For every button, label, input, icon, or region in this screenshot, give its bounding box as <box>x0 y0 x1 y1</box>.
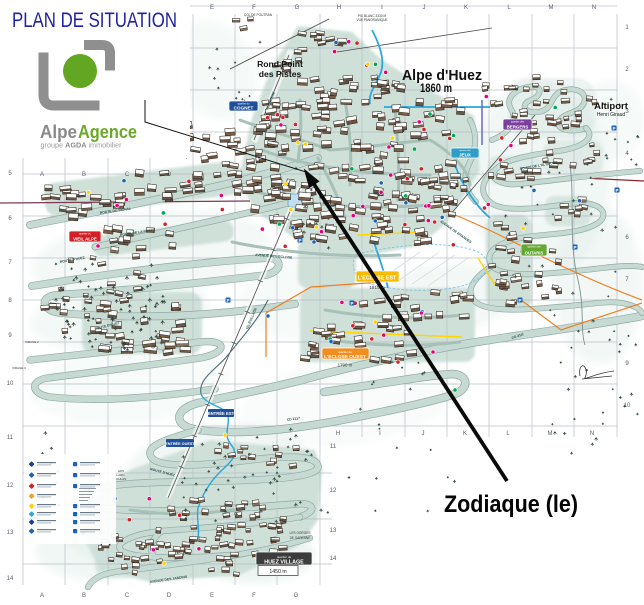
svg-text:C: C <box>125 172 130 178</box>
svg-text:Alpe d'Huez: Alpe d'Huez <box>402 67 482 84</box>
svg-text:LES GORGES: LES GORGES <box>290 531 311 535</box>
svg-text:Agence: Agence <box>78 122 137 142</box>
svg-text:B: B <box>82 172 86 178</box>
svg-text:G: G <box>295 5 300 11</box>
svg-text:P: P <box>350 301 353 306</box>
svg-text:N: N <box>592 5 596 11</box>
svg-text:14: 14 <box>330 556 337 562</box>
svg-text:G: G <box>294 593 299 599</box>
svg-text:H: H <box>337 5 341 11</box>
svg-text:H: H <box>336 431 340 437</box>
svg-text:JEUX: JEUX <box>459 153 472 158</box>
svg-text:D: D <box>167 593 172 599</box>
svg-text:Henri Giraud: Henri Giraud <box>597 112 626 118</box>
svg-text:A: A <box>40 172 44 178</box>
svg-text:C: C <box>125 593 130 599</box>
svg-text:J: J <box>422 431 425 437</box>
svg-text:quartier de: quartier de <box>277 555 292 559</box>
svg-text:P: P <box>226 298 229 303</box>
svg-text:HUEZ VILLAGE: HUEZ VILLAGE <box>264 560 304 566</box>
svg-text:1790 m: 1790 m <box>338 363 353 368</box>
svg-text:Rond Point: Rond Point <box>257 59 303 69</box>
svg-text:DE SARENNE: DE SARENNE <box>290 536 311 540</box>
svg-text:A: A <box>40 593 44 599</box>
svg-text:P: P <box>615 188 618 193</box>
svg-text:ENTRÉE OUEST: ENTRÉE OUEST <box>165 441 195 446</box>
svg-text:des Pistes: des Pistes <box>259 69 302 79</box>
svg-text:Zodiaque (le): Zodiaque (le) <box>444 491 578 518</box>
svg-text:P: P <box>612 126 615 131</box>
svg-text:quartier de: quartier de <box>338 350 352 354</box>
svg-text:M: M <box>548 431 553 437</box>
svg-text:L'ECLOSE OUEST: L'ECLOSE OUEST <box>324 354 366 360</box>
svg-text:B: B <box>82 593 86 599</box>
svg-text:10: 10 <box>7 381 14 387</box>
svg-text:1450 m: 1450 m <box>269 569 286 575</box>
svg-text:1860 m: 1860 m <box>420 83 452 95</box>
svg-text:quartier des: quartier des <box>527 245 541 248</box>
svg-text:F: F <box>252 593 256 599</box>
svg-text:VIRAGE 1: VIRAGE 1 <box>378 324 392 328</box>
svg-text:ENTRÉE EST: ENTRÉE EST <box>208 411 235 416</box>
svg-text:quartier des: quartier des <box>459 149 471 152</box>
svg-text:14: 14 <box>7 576 14 582</box>
svg-text:11: 11 <box>7 435 14 441</box>
svg-text:Altiport: Altiport <box>594 101 629 112</box>
svg-text:quartier des: quartier des <box>511 120 525 123</box>
svg-text:N: N <box>590 431 594 437</box>
svg-text:M: M <box>549 5 554 11</box>
svg-text:VIEIL ALPE: VIEIL ALPE <box>73 237 97 242</box>
svg-text:12: 12 <box>330 488 337 494</box>
svg-text:J: J <box>423 5 426 11</box>
svg-text:12: 12 <box>7 483 14 489</box>
svg-text:F: F <box>252 5 256 11</box>
svg-text:quartier du: quartier du <box>79 232 92 235</box>
svg-text:13: 13 <box>7 530 14 536</box>
svg-text:K: K <box>464 5 468 11</box>
svg-text:OUTARIS: OUTARIS <box>525 251 544 256</box>
svg-text:P: P <box>518 298 521 303</box>
svg-text:E: E <box>210 5 214 11</box>
svg-text:P: P <box>573 245 576 250</box>
svg-text:VIRAGE 2: VIRAGE 2 <box>25 340 39 344</box>
svg-text:COGNET: COGNET <box>234 106 254 111</box>
svg-text:PLAN DE SITUATION: PLAN DE SITUATION <box>12 9 177 32</box>
svg-text:VIRAGE 3: VIRAGE 3 <box>12 366 26 370</box>
svg-text:E: E <box>210 593 214 599</box>
svg-text:13: 13 <box>330 528 337 534</box>
svg-text:VUE PANORAMIQUE: VUE PANORAMIQUE <box>356 18 387 22</box>
svg-text:K: K <box>463 431 467 437</box>
svg-text:Alpe: Alpe <box>40 122 77 142</box>
svg-text:groupe AGDA immobilier: groupe AGDA immobilier <box>41 143 123 150</box>
svg-text:BERGERS: BERGERS <box>507 125 529 130</box>
svg-text:P: P <box>298 238 301 243</box>
svg-text:COL DE POUTRAN: COL DE POUTRAN <box>244 13 273 17</box>
svg-text:11: 11 <box>330 444 337 450</box>
